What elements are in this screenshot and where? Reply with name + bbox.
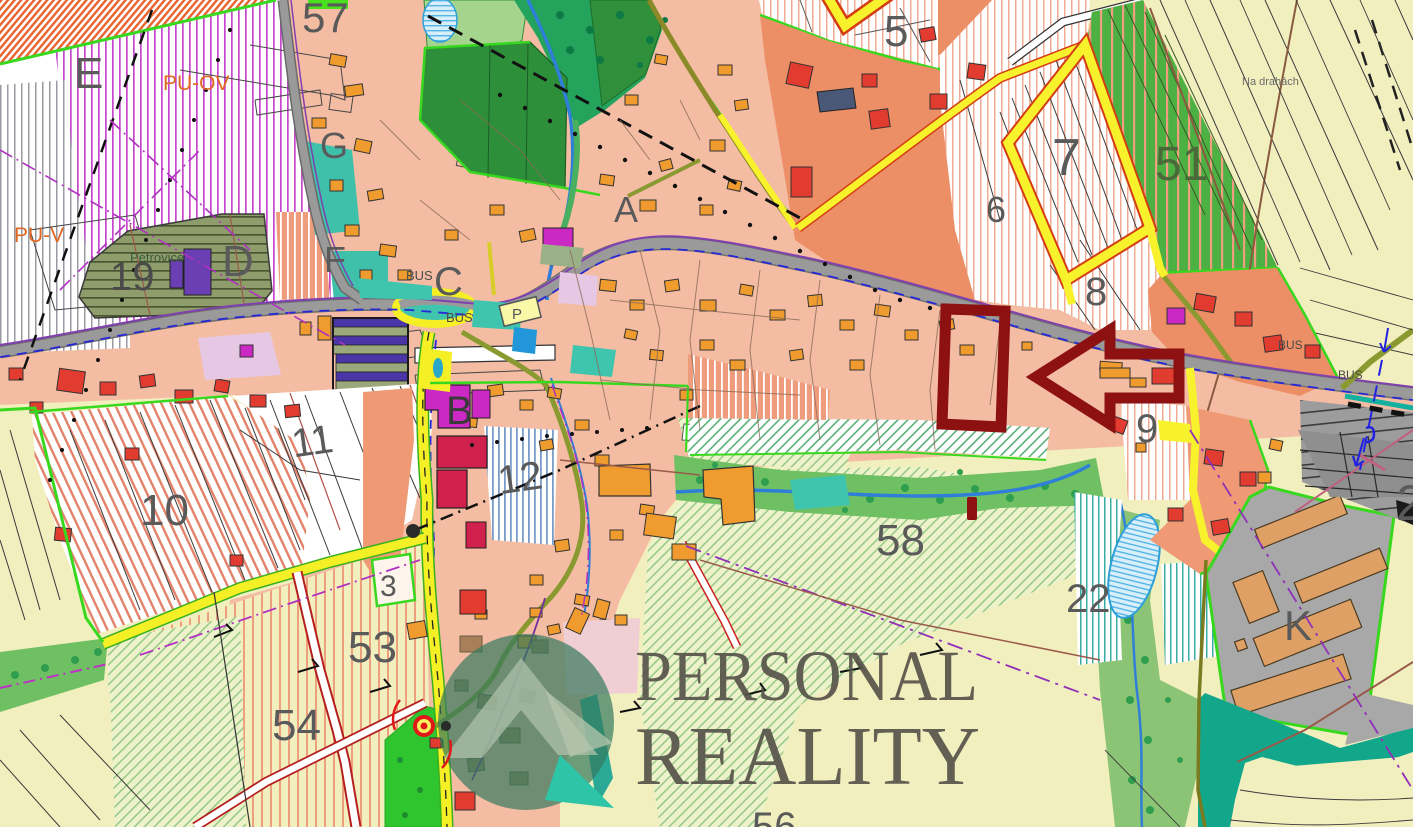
svg-text:Petrovice: Petrovice xyxy=(130,250,184,265)
svg-text:53: 53 xyxy=(348,623,397,672)
svg-text:B: B xyxy=(446,389,473,433)
svg-text:51: 51 xyxy=(1155,138,1208,191)
svg-text:6: 6 xyxy=(986,189,1006,230)
svg-text:10: 10 xyxy=(140,486,189,535)
svg-text:PERSONAL: PERSONAL xyxy=(635,636,978,716)
svg-text:PU-V: PU-V xyxy=(14,224,64,247)
svg-text:9: 9 xyxy=(1136,407,1158,451)
svg-text:BUS: BUS xyxy=(446,310,473,325)
svg-text:7: 7 xyxy=(1052,129,1081,187)
svg-text:12: 12 xyxy=(495,453,545,503)
svg-text:G: G xyxy=(320,125,348,166)
svg-text:E: E xyxy=(74,49,103,98)
svg-text:Na drahách: Na drahách xyxy=(1242,76,1299,88)
svg-text:D: D xyxy=(222,237,254,286)
svg-text:PU-OV: PU-OV xyxy=(163,72,230,95)
svg-text:BUS: BUS xyxy=(1278,338,1303,352)
svg-text:3: 3 xyxy=(380,570,397,603)
svg-text:BUS: BUS xyxy=(1338,368,1363,382)
svg-text:F: F xyxy=(324,239,346,280)
svg-text:57: 57 xyxy=(302,0,349,41)
svg-text:22: 22 xyxy=(1066,577,1111,621)
svg-text:5: 5 xyxy=(884,7,908,56)
svg-text:54: 54 xyxy=(272,701,321,750)
svg-text:P: P xyxy=(512,306,522,323)
svg-text:REALITY: REALITY xyxy=(635,710,980,803)
svg-text:K: K xyxy=(1284,602,1312,649)
svg-text:56: 56 xyxy=(752,805,797,827)
svg-text:8: 8 xyxy=(1085,270,1107,314)
svg-text:A: A xyxy=(614,189,638,230)
svg-text:11: 11 xyxy=(289,417,336,466)
svg-text:C: C xyxy=(434,260,463,304)
svg-text:BUS: BUS xyxy=(406,268,433,283)
svg-text:58: 58 xyxy=(876,516,925,565)
svg-text:2: 2 xyxy=(1396,475,1413,531)
